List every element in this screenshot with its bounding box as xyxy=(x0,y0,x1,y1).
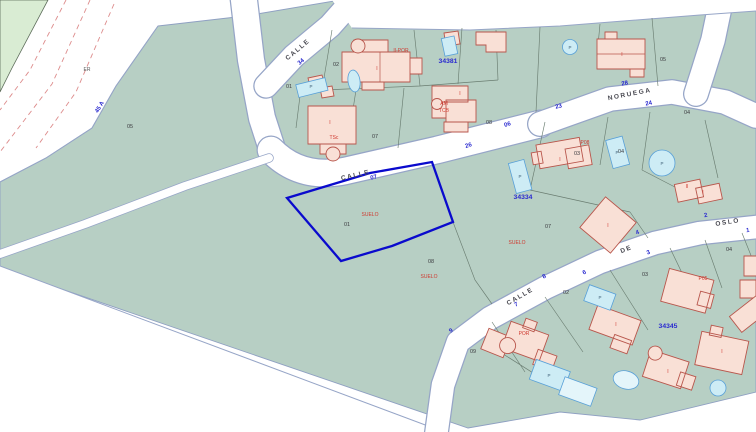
construction-label: TCB xyxy=(439,108,450,114)
floor-mark: I xyxy=(607,223,608,229)
parcel-number: 04 xyxy=(726,247,732,253)
parcel-number: 02 xyxy=(333,62,339,68)
construction-label: I xyxy=(702,190,703,196)
block-number: 34381 xyxy=(439,58,458,65)
floor-mark: I xyxy=(615,322,616,328)
parcel-number: 09 xyxy=(470,349,476,355)
road-label-er: ER xyxy=(84,67,91,73)
cadastral-map-viewport[interactable]: ER 45 A CALLE 34 CALLE 07 06 26 NORUEGA … xyxy=(0,0,756,432)
construction-label: SUELO xyxy=(509,240,526,246)
pool-mark: P xyxy=(615,150,618,155)
parcel-number: 07 xyxy=(545,224,551,230)
construction-label: AM xyxy=(440,101,448,107)
pool-mark: P xyxy=(309,84,312,89)
parcel-number: 08 xyxy=(428,259,434,265)
construction-label: II-POR xyxy=(393,48,409,54)
block-number: 34334 xyxy=(514,194,533,201)
selected-parcel-landuse: SUELO xyxy=(362,212,379,218)
parcel-number: 03 xyxy=(574,151,580,157)
parcel-number: 05 xyxy=(127,124,133,130)
parcel-number: 07 xyxy=(372,134,378,140)
floor-mark: I xyxy=(667,369,668,375)
parcel-number: 08 xyxy=(486,120,492,126)
floor-mark: I xyxy=(376,66,377,72)
pool-mark: P xyxy=(598,295,601,300)
parcel-number: 03 xyxy=(642,272,648,278)
parcel-number: 04 xyxy=(618,149,624,155)
construction-label: P08 xyxy=(581,140,590,146)
construction-label: II xyxy=(686,184,689,190)
floor-mark: I xyxy=(559,157,560,163)
selected-parcel-number: 01 xyxy=(344,222,350,228)
floor-mark: I xyxy=(329,120,330,126)
floor-mark: I xyxy=(621,52,622,58)
parcel-number: 01 xyxy=(286,84,292,90)
green-area[interactable] xyxy=(0,0,48,92)
pool-mark: P xyxy=(568,45,571,50)
floor-mark: I xyxy=(721,349,722,355)
pool-mark: P xyxy=(547,373,550,378)
parcel-number: 02 xyxy=(563,290,569,296)
pool-mark: P xyxy=(518,174,521,179)
block-number: 34345 xyxy=(659,323,678,330)
construction-label: P05 xyxy=(699,276,708,282)
construction-label: TSc xyxy=(330,135,339,141)
pool-mark: P xyxy=(660,161,663,166)
construction-label: POR xyxy=(519,331,530,337)
parcel-number: 05 xyxy=(660,57,666,63)
pool[interactable] xyxy=(710,380,726,396)
cadastral-map[interactable]: ER 45 A CALLE 34 CALLE 07 06 26 NORUEGA … xyxy=(0,0,756,432)
parcel-number: 04 xyxy=(684,110,690,116)
construction-label: SUELO xyxy=(421,274,438,280)
floor-mark: I xyxy=(459,91,460,97)
